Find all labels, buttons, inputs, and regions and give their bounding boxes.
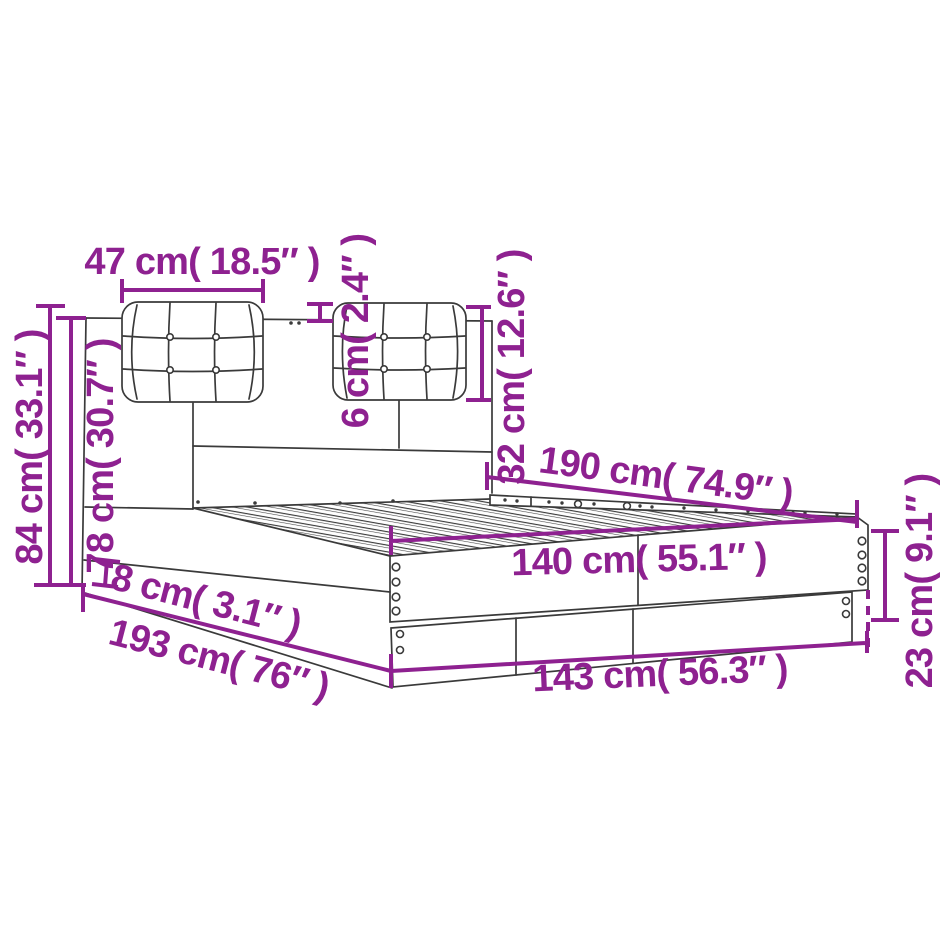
dim-label-cushion-thickness: 6 cm( 2.4″ ) — [335, 234, 377, 428]
dim-line-cushion-thickness — [307, 304, 333, 321]
bed-frame-diagram-svg: 47 cm( 18.5″ ) 6 cm( 2.4″ ) 32 cm( 12.6″… — [0, 0, 947, 947]
dim-label-frame-height: 23 cm( 9.1″ ) — [899, 474, 941, 689]
dim-label-slat-width: 140 cm( 55.1″ ) — [511, 536, 767, 585]
dim-line-frame-height — [868, 531, 899, 652]
dim-label-cushion-height: 32 cm( 12.6″ ) — [491, 249, 533, 484]
dim-label-cushion-width: 47 cm( 18.5″ ) — [84, 241, 319, 283]
dimension-diagram: 47 cm( 18.5″ ) 6 cm( 2.4″ ) 32 cm( 12.6″… — [0, 0, 947, 947]
headboard-cushion-left — [122, 302, 263, 402]
dim-label-headboard-height: 78 cm( 30.7″ ) — [80, 338, 122, 573]
dim-label-total-height: 84 cm( 33.1″ ) — [9, 329, 51, 564]
